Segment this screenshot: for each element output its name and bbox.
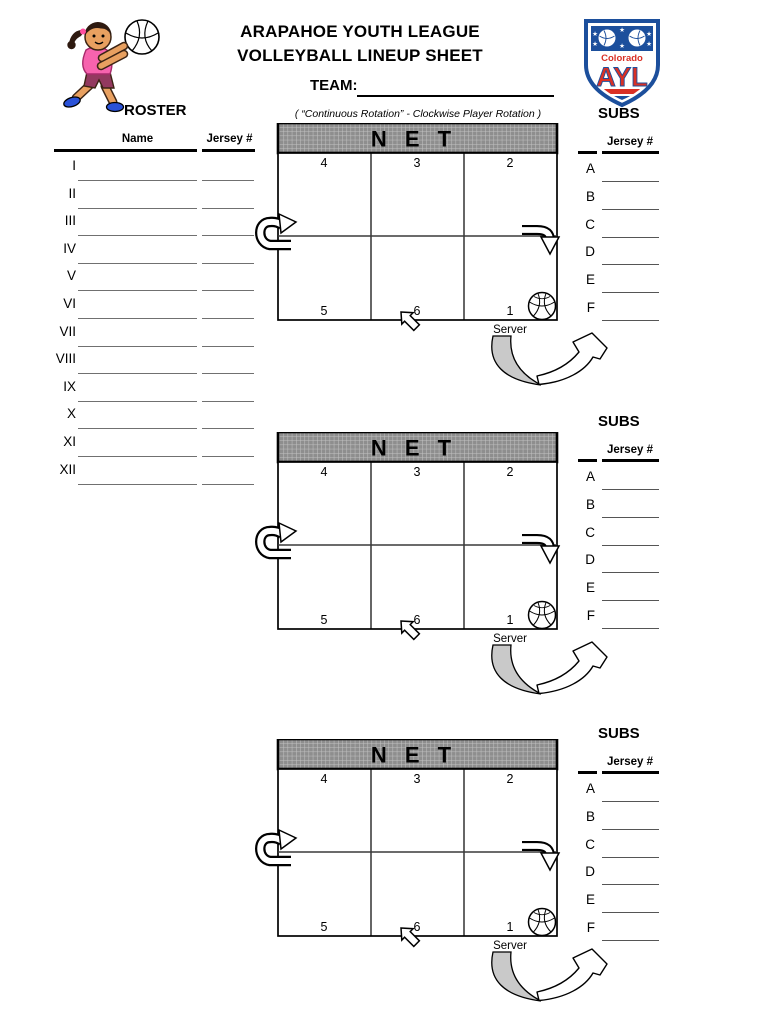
roster-numeral: VII	[54, 324, 76, 339]
position-number: 5	[321, 613, 328, 627]
svg-text:★: ★	[592, 40, 598, 48]
roster-row: VII	[54, 321, 259, 349]
subs-jersey-field[interactable]	[602, 806, 659, 830]
subs-row: E	[578, 577, 668, 605]
girl-player	[63, 22, 124, 112]
subs-header-rule	[602, 151, 659, 154]
position-number: 5	[321, 920, 328, 934]
roster-name-field[interactable]	[78, 238, 197, 264]
subs-row: F	[578, 917, 668, 945]
subs-jersey-header: Jersey #	[602, 756, 658, 768]
subs-letter: E	[578, 580, 595, 595]
subs-jersey-field[interactable]	[602, 186, 659, 210]
roster-row: VI	[54, 293, 259, 321]
subs-jersey-field[interactable]	[602, 917, 659, 941]
lineup-court: N E T 4 3 2 5 6 1	[254, 123, 614, 393]
subs-section: SUBS Jersey # A B C D E F	[578, 413, 668, 638]
title-line-1: ARAPAHOE YOUTH LEAGUE	[210, 20, 510, 44]
subs-header-rule-left	[578, 459, 597, 462]
roster-name-field[interactable]	[78, 293, 197, 319]
subs-row: B	[578, 186, 668, 214]
subs-row: B	[578, 806, 668, 834]
roster-table: I II III IV V VI	[54, 155, 259, 486]
subs-heading: SUBS	[598, 725, 640, 742]
girl-volleyball-clipart	[60, 10, 172, 114]
subs-jersey-field[interactable]	[602, 605, 659, 629]
roster-row: X	[54, 403, 259, 431]
roster-jersey-field[interactable]	[202, 183, 254, 209]
subs-letter: E	[578, 892, 595, 907]
roster-row: IV	[54, 238, 259, 266]
subs-section: SUBS Jersey # A B C D E F	[578, 105, 668, 330]
roster-numeral: IX	[54, 379, 76, 394]
roster-header-rule	[54, 149, 197, 152]
position-number: 6	[414, 920, 421, 934]
position-number: 2	[507, 465, 514, 479]
rotation-note: ( “Continuous Rotation” - Clockwise Play…	[270, 108, 566, 120]
position-number: 4	[321, 156, 328, 170]
roster-row: IX	[54, 376, 259, 404]
subs-letter: A	[578, 161, 595, 176]
roster-jersey-field[interactable]	[202, 348, 254, 374]
roster-name-field[interactable]	[78, 403, 197, 429]
roster-name-field[interactable]	[78, 321, 197, 347]
roster-jersey-field[interactable]	[202, 155, 254, 181]
roster-row: II	[54, 183, 259, 211]
roster-numeral: III	[54, 213, 76, 228]
subs-letter: A	[578, 781, 595, 796]
roster-numeral: IV	[54, 241, 76, 256]
subs-row: E	[578, 889, 668, 917]
subs-letter: F	[578, 608, 595, 623]
roster-jersey-field[interactable]	[202, 376, 254, 402]
server-label: Server	[493, 940, 527, 952]
subs-row: D	[578, 549, 668, 577]
subs-rows: A B C D E F	[578, 778, 668, 945]
roster-numeral: V	[54, 268, 76, 283]
team-label: TEAM:	[310, 77, 358, 94]
serve-swoosh-arrow-icon	[492, 333, 607, 385]
subs-heading: SUBS	[598, 413, 640, 430]
team-name-field[interactable]	[357, 95, 554, 97]
subs-row: A	[578, 466, 668, 494]
position-number: 3	[414, 465, 421, 479]
roster-name-field[interactable]	[78, 183, 197, 209]
subs-letter: A	[578, 469, 595, 484]
roster-name-field[interactable]	[78, 348, 197, 374]
subs-letter: C	[578, 217, 595, 232]
lineup-sheet-page: ARAPAHOE YOUTH LEAGUE VOLLEYBALL LINEUP …	[0, 0, 770, 1024]
serve-swoosh-arrow-icon	[492, 642, 607, 694]
roster-numeral: VI	[54, 296, 76, 311]
position-number: 1	[507, 613, 514, 627]
server-label: Server	[493, 324, 527, 336]
subs-section: SUBS Jersey # A B C D E F	[578, 725, 668, 950]
subs-header-rule-left	[578, 151, 597, 154]
subs-row: A	[578, 158, 668, 186]
volleyball-icon	[529, 909, 556, 936]
svg-text:★: ★	[646, 30, 652, 38]
subs-heading: SUBS	[598, 105, 640, 122]
roster-numeral: II	[54, 186, 76, 201]
roster-row: V	[54, 265, 259, 293]
subs-row: C	[578, 214, 668, 242]
subs-letter: C	[578, 525, 595, 540]
roster-jersey-field[interactable]	[202, 238, 254, 264]
subs-jersey-field[interactable]	[602, 466, 659, 490]
roster-numeral: XI	[54, 434, 76, 449]
lineup-court: N E T 4 3 2 5 6 1	[254, 432, 614, 702]
subs-rows: A B C D E F	[578, 466, 668, 633]
subs-letter: D	[578, 244, 595, 259]
subs-jersey-header: Jersey #	[602, 444, 658, 456]
roster-jersey-field[interactable]	[202, 293, 254, 319]
roster-row: VIII	[54, 348, 259, 376]
subs-jersey-field[interactable]	[602, 577, 659, 601]
position-number: 2	[507, 772, 514, 786]
subs-row: D	[578, 861, 668, 889]
volleyball-icon	[125, 20, 159, 54]
position-number: 4	[321, 465, 328, 479]
server-label: Server	[493, 633, 527, 645]
subs-jersey-field[interactable]	[602, 269, 659, 293]
net-label: N E T	[371, 127, 457, 152]
subs-header-rule	[602, 459, 659, 462]
subs-letter: B	[578, 189, 595, 204]
roster-name-header: Name	[78, 133, 197, 145]
subs-letter: F	[578, 300, 595, 315]
roster-name-field[interactable]	[78, 376, 197, 402]
subs-jersey-field[interactable]	[602, 522, 659, 546]
subs-letter: D	[578, 552, 595, 567]
position-number: 6	[414, 304, 421, 318]
subs-jersey-field[interactable]	[602, 834, 659, 858]
net-label: N E T	[371, 436, 457, 461]
roster-row: XI	[54, 431, 259, 459]
subs-rows: A B C D E F	[578, 158, 668, 325]
subs-row: F	[578, 297, 668, 325]
roster-jersey-field[interactable]	[202, 265, 254, 291]
subs-row: F	[578, 605, 668, 633]
roster-jersey-field[interactable]	[202, 210, 254, 236]
subs-row: C	[578, 834, 668, 862]
svg-text:★: ★	[646, 40, 652, 48]
svg-text:★: ★	[619, 42, 625, 50]
subs-jersey-field[interactable]	[602, 297, 659, 321]
subs-jersey-header: Jersey #	[602, 136, 658, 148]
subs-jersey-field[interactable]	[602, 214, 659, 238]
position-number: 1	[507, 304, 514, 318]
position-number: 5	[321, 304, 328, 318]
subs-letter: E	[578, 272, 595, 287]
position-number: 3	[414, 772, 421, 786]
subs-jersey-field[interactable]	[602, 889, 659, 913]
svg-text:★: ★	[592, 30, 598, 38]
roster-jersey-field[interactable]	[202, 459, 254, 485]
subs-jersey-field[interactable]	[602, 549, 659, 573]
roster-jersey-field[interactable]	[202, 321, 254, 347]
subs-jersey-field[interactable]	[602, 861, 659, 885]
position-number: 2	[507, 156, 514, 170]
roster-numeral: VIII	[54, 351, 76, 366]
roster-name-field[interactable]	[78, 431, 197, 457]
roster-name-field[interactable]	[78, 459, 197, 485]
roster-row: I	[54, 155, 259, 183]
title-line-2: VOLLEYBALL LINEUP SHEET	[210, 44, 510, 68]
subs-header-rule	[602, 771, 659, 774]
roster-row: III	[54, 210, 259, 238]
roster-heading: ROSTER	[124, 102, 187, 119]
roster-jersey-header: Jersey #	[202, 133, 257, 145]
page-title: ARAPAHOE YOUTH LEAGUE VOLLEYBALL LINEUP …	[210, 20, 510, 68]
roster-jersey-field[interactable]	[202, 431, 254, 457]
subs-row: D	[578, 241, 668, 269]
lineup-court: N E T 4 3 2 5 6 1	[254, 739, 614, 1009]
subs-row: A	[578, 778, 668, 806]
roster-header-rule	[202, 149, 255, 152]
roster-row: XII	[54, 459, 259, 487]
position-number: 6	[414, 613, 421, 627]
roster-numeral: XII	[54, 462, 76, 477]
subs-jersey-field[interactable]	[602, 241, 659, 265]
subs-letter: C	[578, 837, 595, 852]
subs-letter: B	[578, 809, 595, 824]
roster-numeral: I	[54, 158, 76, 173]
subs-header-rule-left	[578, 771, 597, 774]
subs-row: B	[578, 494, 668, 522]
position-number: 4	[321, 772, 328, 786]
logo-abbr-text: AYL	[596, 62, 648, 92]
roster-numeral: X	[54, 406, 76, 421]
roster-jersey-field[interactable]	[202, 403, 254, 429]
roster-name-field[interactable]	[78, 155, 197, 181]
position-number: 3	[414, 156, 421, 170]
volleyball-icon	[529, 293, 556, 320]
roster-name-field[interactable]	[78, 210, 197, 236]
svg-text:★: ★	[619, 26, 625, 34]
ayl-logo: ★★ ★★ ★★ Colorado AYL	[583, 16, 661, 110]
subs-letter: D	[578, 864, 595, 879]
subs-letter: B	[578, 497, 595, 512]
subs-jersey-field[interactable]	[602, 494, 659, 518]
net-label: N E T	[371, 743, 457, 768]
subs-letter: F	[578, 920, 595, 935]
subs-jersey-field[interactable]	[602, 778, 659, 802]
subs-row: C	[578, 522, 668, 550]
subs-jersey-field[interactable]	[602, 158, 659, 182]
subs-row: E	[578, 269, 668, 297]
serve-swoosh-arrow-icon	[492, 949, 607, 1001]
volleyball-icon	[529, 602, 556, 629]
position-number: 1	[507, 920, 514, 934]
roster-name-field[interactable]	[78, 265, 197, 291]
